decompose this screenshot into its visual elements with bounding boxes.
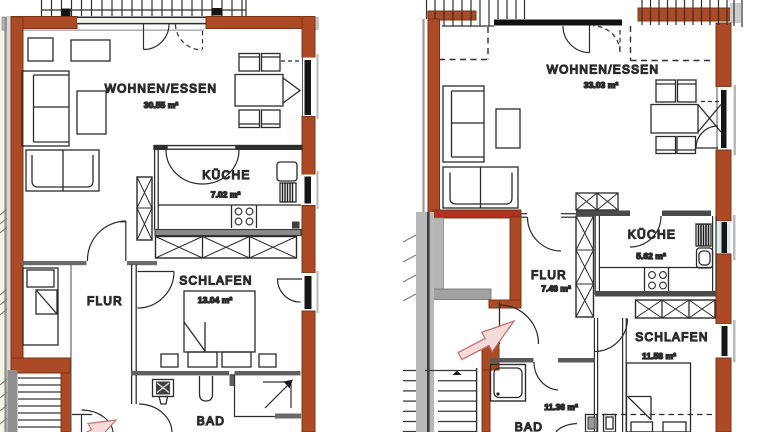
svg-text:7.48 m²: 7.48 m² (541, 284, 571, 294)
svg-text:33.03 m²: 33.03 m² (584, 80, 619, 90)
svg-text:FLUR: FLUR (531, 268, 567, 282)
svg-text:FLUR: FLUR (87, 294, 123, 308)
svg-text:11.58 m²: 11.58 m² (642, 351, 676, 361)
svg-text:BAD: BAD (515, 420, 544, 432)
svg-text:5.62 m²: 5.62 m² (636, 251, 666, 261)
svg-text:7.02 m²: 7.02 m² (211, 190, 241, 200)
svg-text:WOHNEN/ESSEN: WOHNEN/ESSEN (105, 82, 218, 96)
svg-text:KÜCHE: KÜCHE (202, 168, 251, 182)
svg-text:11.36 m²: 11.36 m² (544, 402, 578, 412)
svg-text:KÜCHE: KÜCHE (628, 228, 677, 242)
svg-text:SCHLAFEN: SCHLAFEN (635, 330, 708, 344)
svg-text:SCHLAFEN: SCHLAFEN (179, 274, 252, 288)
svg-text:30.55 m²: 30.55 m² (144, 100, 179, 110)
svg-text:13.04 m²: 13.04 m² (198, 295, 233, 305)
svg-text:BAD: BAD (197, 414, 226, 428)
svg-text:WOHNEN/ESSEN: WOHNEN/ESSEN (547, 63, 660, 77)
